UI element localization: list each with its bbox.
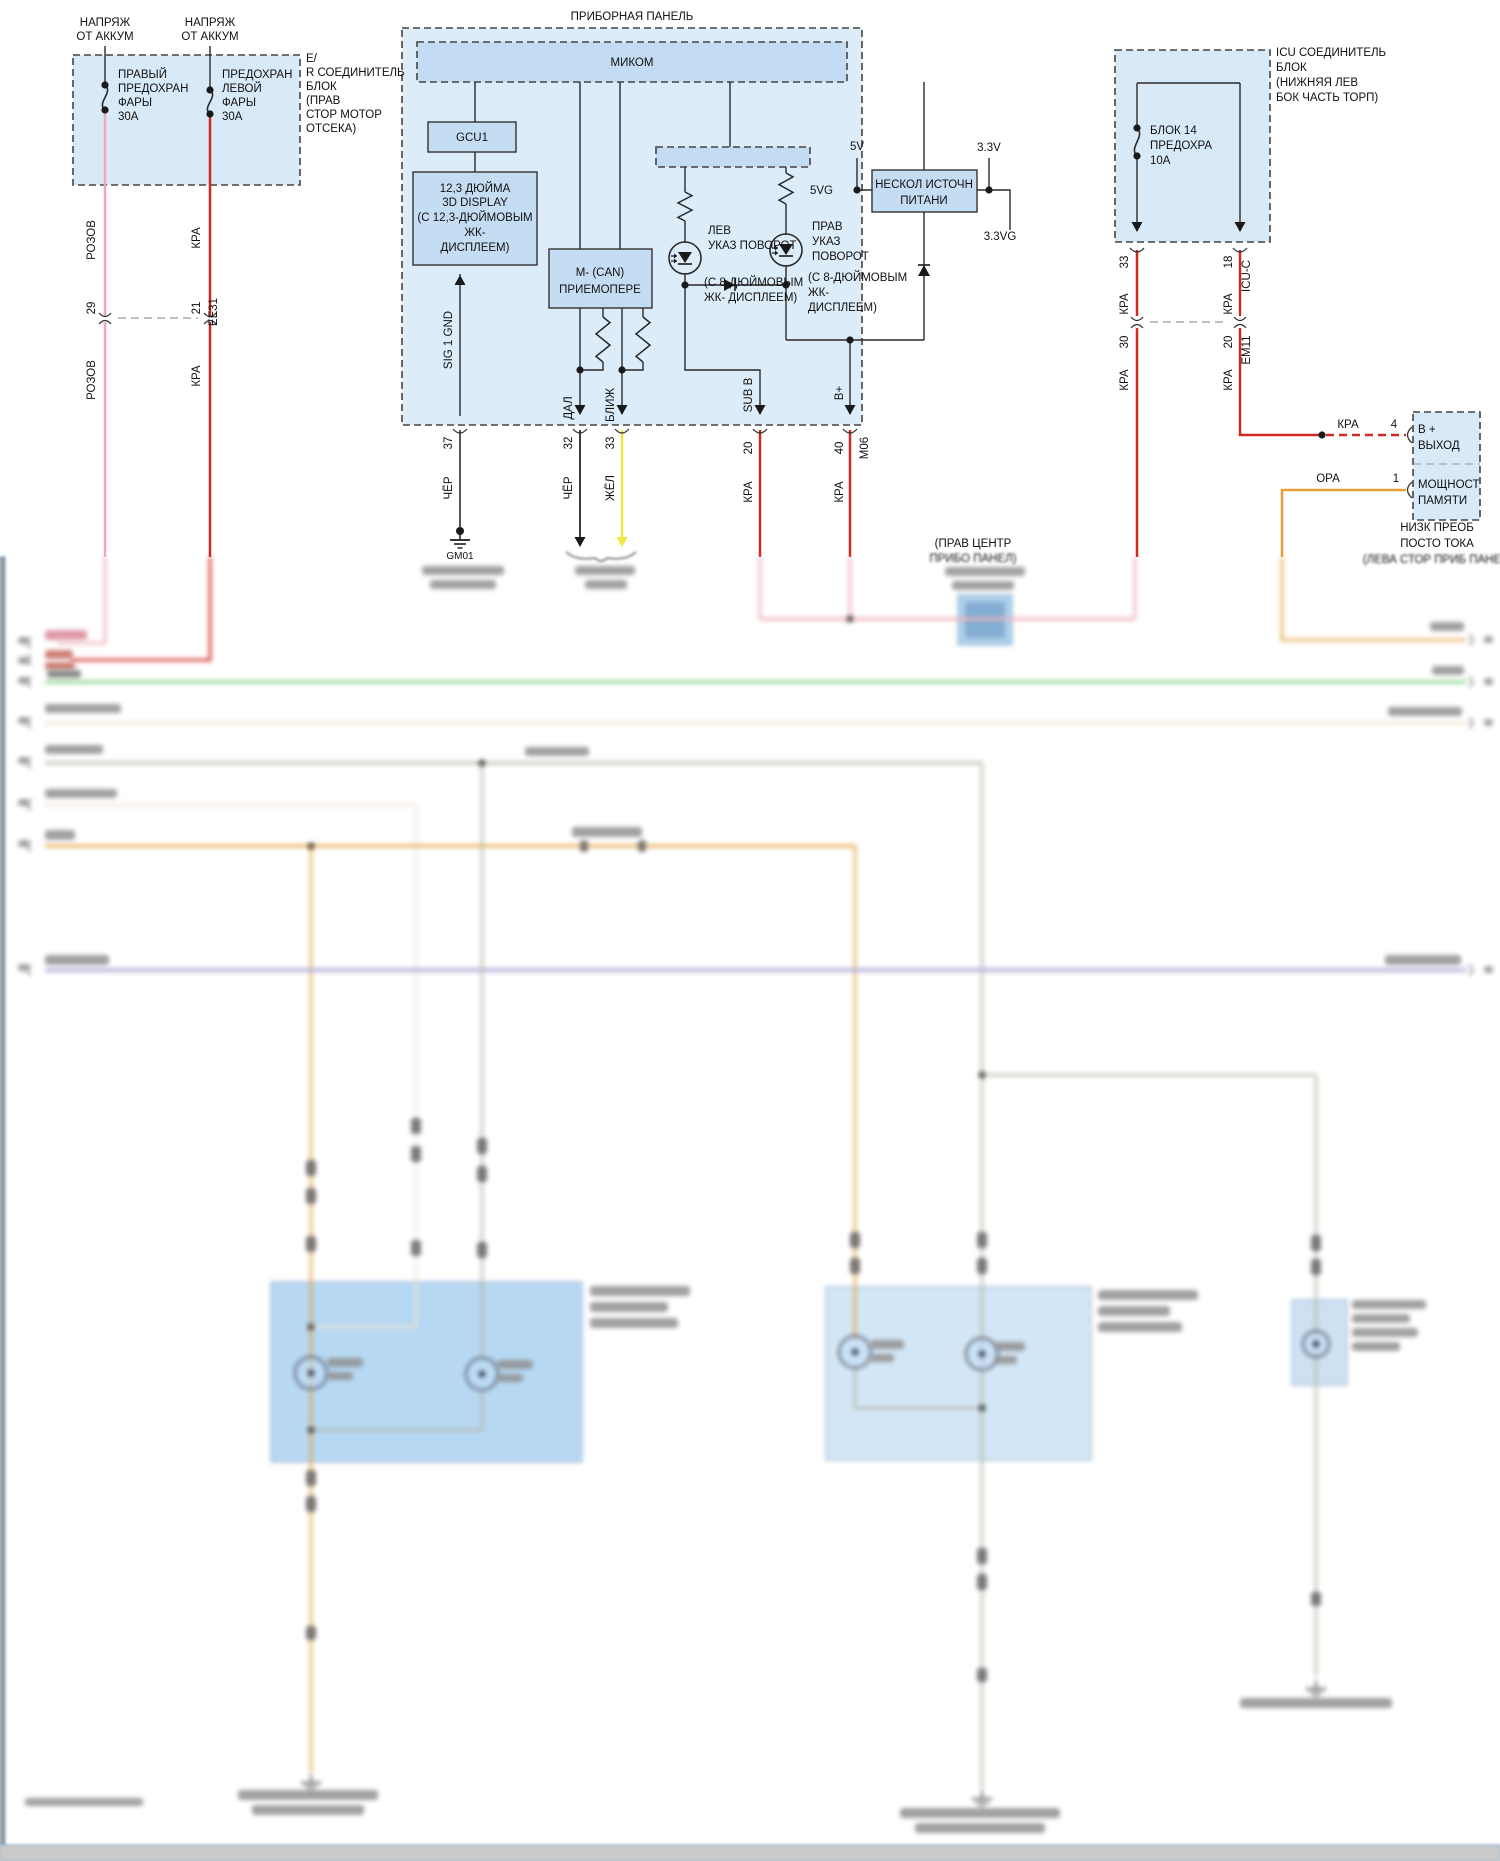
blurred-label — [575, 566, 635, 575]
w-zhel: ЖЁЛ — [605, 475, 617, 501]
batt1-line1: НАПРЯЖ — [80, 17, 131, 29]
blurred-label — [306, 1236, 316, 1252]
v5g-label: 5VG — [810, 185, 833, 197]
blurred-label — [1098, 1290, 1198, 1300]
junction-dot — [206, 110, 213, 117]
blurred-label — [45, 704, 121, 713]
m06-loc-l1: (ПРАВ ЦЕНТР — [935, 538, 1012, 550]
mem-l1: МОЩНОСТ — [1418, 479, 1480, 491]
bplus-l2: ВЫХОД — [1418, 440, 1460, 452]
blurred-label — [25, 1798, 143, 1806]
blurred-label — [45, 789, 117, 798]
gm01: GM01 — [446, 551, 474, 562]
w-cher-2: ЧЁР — [563, 476, 575, 499]
w-kra-7: КРА — [1119, 369, 1131, 391]
blurred-label — [477, 1138, 487, 1154]
pin-21: 21 — [191, 302, 203, 315]
right-tick — [1469, 718, 1473, 728]
junction-dot — [307, 1426, 314, 1433]
blurred-label — [952, 581, 1014, 590]
blurred-label — [45, 745, 103, 754]
blurred-label — [977, 1232, 987, 1248]
lev-l3: (С 8-ДЮЙМОВЫМ — [704, 276, 803, 289]
blurred-label — [430, 580, 496, 589]
w-kra-2: КРА — [191, 365, 203, 387]
connector-bracket — [1408, 482, 1413, 498]
blurred-label — [915, 1823, 1045, 1833]
blurred-label — [18, 637, 29, 644]
fuse1-l4: 30A — [118, 111, 139, 123]
conv-l2: ПОСТО ТОКА — [1400, 538, 1474, 550]
blurred-label — [900, 1808, 1060, 1818]
blurred-label — [945, 567, 1025, 576]
blurred-label — [47, 670, 81, 678]
blurred-label — [1352, 1300, 1426, 1309]
blurred-label — [18, 964, 29, 971]
conn-ee31: EE31 — [208, 298, 220, 326]
er-l5: СТОР МОТОР — [306, 109, 382, 121]
blurred-label — [45, 662, 75, 670]
junction-dot — [618, 366, 625, 373]
blurred-label — [18, 677, 29, 684]
junction-dot — [1318, 431, 1325, 438]
er-l2: R СОЕДИНИТЕЛЬ — [306, 67, 405, 79]
batt1-line2: ОТ АККУМ — [76, 31, 133, 43]
junction-dot — [846, 336, 853, 343]
pin-29: 29 — [86, 302, 98, 315]
w-rozov-1: РОЗОВ — [86, 220, 98, 260]
er-l3: БЛОК — [306, 81, 337, 93]
junction-dot — [985, 186, 992, 193]
blurred-label — [580, 840, 588, 852]
blurred-label — [1352, 1314, 1410, 1323]
pwr-l1: НЕСКОЛ ИСТОЧН — [875, 179, 973, 191]
blurred-label — [306, 1496, 316, 1512]
blurred-label — [995, 1342, 1025, 1351]
junction-dot — [307, 842, 314, 849]
fuse2-l2: ЛЕВОЙ — [222, 82, 262, 95]
icu-l3: (НИЖНЯЯ ЛЕВ — [1276, 77, 1358, 89]
blurred-label — [1098, 1306, 1170, 1316]
blurred-label — [477, 1242, 487, 1258]
junction-dot — [101, 81, 108, 88]
can-l1: М- (CAN) — [576, 267, 625, 279]
lamp-bulb-icon — [1313, 1341, 1320, 1348]
diagram-canvas: НАПРЯЖОТ АККУМНАПРЯЖОТ АККУМПРАВЫЙПРЕДОХ… — [0, 0, 1500, 1861]
blurred-label — [18, 657, 29, 664]
disp-l1: 12,3 ДЮЙМА — [440, 182, 511, 195]
blurred-label — [18, 717, 29, 724]
fuse2-l1: ПРЕДОХРАН — [222, 69, 292, 81]
connector-bracket — [1131, 317, 1143, 321]
arrow-down-icon — [617, 537, 628, 547]
icufuse-l2: ПРЕДОХРА — [1150, 140, 1212, 152]
blurred-label — [572, 827, 642, 837]
blurred-label — [45, 650, 73, 659]
lev-l2: УКАЗ ПОВОРОТ — [708, 240, 797, 252]
blurred-label — [590, 1302, 668, 1312]
blurred-label — [327, 1358, 363, 1367]
icu-pin-33: 33 — [1119, 256, 1131, 269]
blurred-label — [1311, 1235, 1321, 1251]
blurred-label — [306, 1626, 316, 1640]
icu-l2: БЛОК — [1276, 62, 1307, 74]
brace — [566, 552, 636, 561]
blurred-label — [411, 1146, 421, 1162]
pwr-l2: ПИТАНИ — [900, 195, 947, 207]
dal: ДАЛ — [563, 396, 575, 419]
blurred-label — [1352, 1342, 1400, 1351]
junction-dot — [101, 106, 108, 113]
blurred-label — [590, 1318, 678, 1328]
disp-l4: ЖК- — [464, 227, 485, 239]
blurred-label — [1352, 1328, 1418, 1337]
diode-icon — [918, 265, 930, 276]
w-kra-5: КРА — [1119, 293, 1131, 315]
lev-l1: ЛЕВ — [708, 225, 731, 237]
w-kra-4: КРА — [834, 481, 846, 503]
junction-dot — [978, 1404, 985, 1411]
lamp-bulb-icon — [308, 1370, 315, 1377]
blurred-label — [995, 1356, 1017, 1364]
right-tick — [1469, 965, 1473, 975]
prav-l1: ПРАВ — [812, 221, 843, 233]
junction-dot — [853, 186, 860, 193]
page-left-edge — [0, 557, 5, 1845]
blurred-label — [638, 840, 646, 852]
pin-32: 32 — [563, 437, 575, 450]
disp-l3: (С 12,3-ДЮЙМОВЫМ — [417, 211, 532, 224]
er-l1: E/ — [306, 53, 318, 65]
fuse1-l3: ФАРЫ — [118, 97, 152, 109]
blurred-label — [1484, 966, 1493, 973]
micom-label: МИКОМ — [611, 57, 654, 69]
pin-40: 40 — [834, 442, 846, 455]
bplus-pin-label: B+ — [834, 386, 846, 401]
blurred-label — [1388, 707, 1462, 716]
blurred-label — [18, 799, 29, 806]
arrow-down-icon — [575, 537, 586, 547]
disp-l2: 3D DISPLAY — [442, 197, 508, 209]
w-kra-1: КРА — [191, 227, 203, 249]
blurred-label — [238, 1790, 378, 1800]
pin-1: 1 — [1393, 473, 1399, 485]
blurred-label — [45, 630, 87, 640]
blurred-label — [45, 955, 109, 965]
blurred-label — [870, 1340, 904, 1349]
junction-dot — [978, 1071, 985, 1078]
lamp-bulb-icon — [479, 1371, 486, 1378]
page-bottom-band — [0, 1845, 1500, 1861]
blurred-label — [45, 830, 75, 840]
blurred-label — [411, 1240, 421, 1256]
conv-l1: НИЗК ПРЕОБ — [1400, 522, 1474, 534]
blurred-label — [1311, 1592, 1321, 1606]
icu-pin-30: 30 — [1119, 336, 1131, 349]
blurred-label — [18, 757, 29, 764]
blurred-label — [18, 840, 29, 847]
prav-l3: ПОВОРОТ — [812, 251, 869, 263]
bplus-l1: В + — [1418, 424, 1436, 436]
blurred-label — [1430, 622, 1464, 631]
w-kra-6: КРА — [1223, 293, 1235, 315]
v33g-label: 3.3VG — [984, 231, 1017, 243]
prav-l4: (С 8-ДЮЙМОВЫМ — [808, 271, 907, 284]
prav-l6: ДИСПЛЕЕМ) — [808, 302, 877, 314]
prav-l2: УКАЗ — [812, 236, 841, 248]
blurred-label — [411, 1118, 421, 1134]
blurred-label — [306, 1160, 316, 1176]
wiring-diagram-page: НАПРЯЖОТ АККУМНАПРЯЖОТ АККУМПРАВЫЙПРЕДОХ… — [0, 0, 1500, 1861]
blurred-label — [477, 1166, 487, 1182]
connector-bracket — [1234, 317, 1246, 321]
blurred-label — [327, 1372, 353, 1380]
sig1gnd: SIG 1 GND — [443, 311, 455, 369]
connector-bracket — [1408, 427, 1413, 443]
blurred-label — [525, 747, 589, 756]
blurred-label — [590, 1286, 690, 1296]
mem-l2: ПАМЯТИ — [1418, 495, 1467, 507]
blurred-label — [1484, 719, 1493, 726]
ora-wire — [1282, 490, 1406, 557]
prav-l5: ЖК- — [808, 287, 829, 299]
fuse1-l2: ПРЕДОХРАН — [118, 83, 188, 95]
right-tick — [1469, 635, 1473, 645]
icu-l4: БОК ЧАСТЬ ТОРП) — [1276, 92, 1378, 104]
conn-m06: М06 — [859, 437, 871, 459]
lev-l4: ЖК- ДИСПЛЕЕМ) — [704, 292, 797, 304]
blurred-label — [1484, 678, 1493, 685]
w-kra-3: КРА — [743, 481, 755, 503]
connector-bracket — [1131, 325, 1143, 329]
led-driver-subband — [656, 147, 810, 167]
batt2-line2: ОТ АККУМ — [181, 31, 238, 43]
kra-wire-blur — [70, 557, 210, 660]
junction-dot — [307, 1323, 314, 1330]
can-l2: ПРИЕМОПЕРЕ — [559, 284, 641, 296]
v33-label: 3.3V — [977, 142, 1001, 154]
junction-dot — [1133, 152, 1140, 159]
fuse2-l4: 30A — [222, 111, 243, 123]
lamp-bulb-icon — [852, 1349, 859, 1356]
v33g-wire — [977, 190, 1010, 230]
subb: SUB B — [743, 377, 755, 412]
blurred-label — [850, 1232, 860, 1248]
blurred-label — [252, 1805, 364, 1815]
blurred-label — [850, 1258, 860, 1274]
blurred-label — [497, 1374, 523, 1382]
lamp-bulb-icon — [979, 1351, 986, 1358]
blurred-label — [977, 1258, 987, 1274]
blurred-label — [422, 566, 504, 575]
blurred-label — [1240, 1698, 1392, 1708]
panel-title: ПРИБОРНАЯ ПАНЕЛЬ — [571, 11, 694, 23]
blurred-label — [1432, 666, 1464, 675]
w-kra-8: КРА — [1223, 369, 1235, 391]
er-l6: ОТСЕКА) — [306, 123, 356, 135]
fuse1-l1: ПРАВЫЙ — [118, 68, 167, 81]
w-ora: ОРА — [1316, 473, 1340, 485]
blurred-label — [870, 1354, 894, 1362]
junction-dot — [681, 281, 688, 288]
icu-pin-18: 18 — [1223, 256, 1235, 269]
pin-33: 33 — [605, 437, 617, 450]
m06-loc-l2: ПРИБО ПАНЕЛ) — [929, 553, 1016, 565]
junction-dot — [1133, 124, 1140, 131]
blurred-label — [977, 1548, 987, 1564]
junction-dot — [478, 759, 485, 766]
junction-dot — [206, 86, 213, 93]
blurred-label — [306, 1188, 316, 1204]
batt2-line1: НАПРЯЖ — [185, 17, 236, 29]
w-cher-1: ЧЁР — [443, 476, 455, 499]
blurred-label — [497, 1360, 533, 1369]
conn-em11: EM11 — [1241, 335, 1253, 364]
blurred-label — [585, 580, 627, 589]
blurred-label — [977, 1668, 987, 1682]
w-rozov-2: РОЗОВ — [86, 360, 98, 400]
pin-20: 20 — [743, 442, 755, 455]
blurred-label — [1311, 1259, 1321, 1275]
pin-4: 4 — [1391, 419, 1398, 431]
blurred-label — [977, 1574, 987, 1590]
w-kra-9: КРА — [1337, 419, 1359, 431]
disp-l5: ДИСПЛЕЕМ) — [441, 242, 510, 254]
icufuse-l3: 10A — [1150, 155, 1171, 167]
blurred-label — [1098, 1322, 1182, 1332]
v5-label: 5V — [850, 141, 864, 153]
er-l4: (ПРАВ — [306, 95, 341, 107]
conn-icu-c: ICU-C — [1241, 260, 1253, 292]
right-tick — [1469, 677, 1473, 687]
junction-dot — [576, 366, 583, 373]
right-headlamp-box — [826, 1287, 1091, 1460]
gcu1-label: GCU1 — [456, 132, 488, 144]
conv-l3: (ЛЕВА СТОР ПРИБ ПАНЕ — [1363, 554, 1500, 566]
pin-37: 37 — [443, 437, 455, 450]
blurred-label — [1385, 955, 1461, 965]
icu-pin-20: 20 — [1223, 336, 1235, 349]
connector-bracket — [1234, 325, 1246, 329]
junction-dot — [846, 615, 853, 622]
icufuse-l1: БЛОК 14 — [1150, 125, 1197, 137]
blurred-label — [1484, 636, 1493, 643]
fuse2-l3: ФАРЫ — [222, 97, 256, 109]
blurred-label — [306, 1470, 316, 1486]
icu-l1: ICU СОЕДИНИТЕЛЬ — [1276, 47, 1386, 59]
blizh: БЛИЖ — [605, 388, 617, 422]
